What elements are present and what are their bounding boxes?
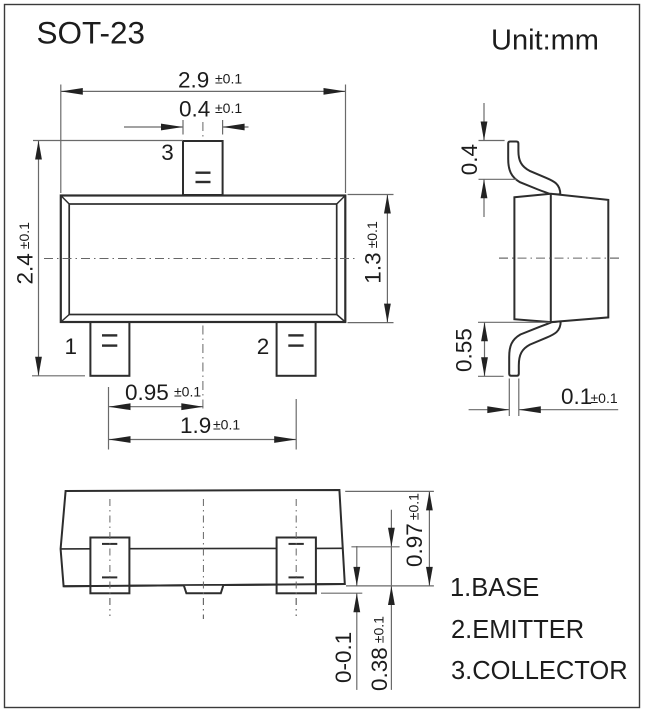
svg-text:3: 3 <box>161 140 174 165</box>
svg-text:±0.1: ±0.1 <box>215 100 242 116</box>
svg-text:±0.1: ±0.1 <box>215 71 242 87</box>
svg-text:1.BASE: 1.BASE <box>450 574 539 602</box>
svg-text:2.9: 2.9 <box>178 68 209 93</box>
svg-text:±0.1: ±0.1 <box>213 417 240 433</box>
svg-text:0.4: 0.4 <box>179 97 210 122</box>
svg-text:±0.1: ±0.1 <box>174 384 201 400</box>
svg-text:1: 1 <box>65 334 78 359</box>
svg-text:0.95: 0.95 <box>125 380 169 405</box>
svg-text:SOT-23: SOT-23 <box>37 14 146 50</box>
svg-text:0-0.1: 0-0.1 <box>331 632 356 683</box>
svg-text:0.1: 0.1 <box>561 384 592 409</box>
svg-text:2.EMITTER: 2.EMITTER <box>451 616 584 644</box>
svg-text:1.9: 1.9 <box>180 413 211 438</box>
svg-text:0.55: 0.55 <box>452 328 477 372</box>
svg-text:±0.1: ±0.1 <box>591 390 618 406</box>
svg-text:Unit:mm: Unit:mm <box>491 24 599 56</box>
svg-text:3.COLLECTOR: 3.COLLECTOR <box>451 657 628 685</box>
svg-text:0.4: 0.4 <box>457 144 482 175</box>
svg-text:2: 2 <box>257 334 270 359</box>
